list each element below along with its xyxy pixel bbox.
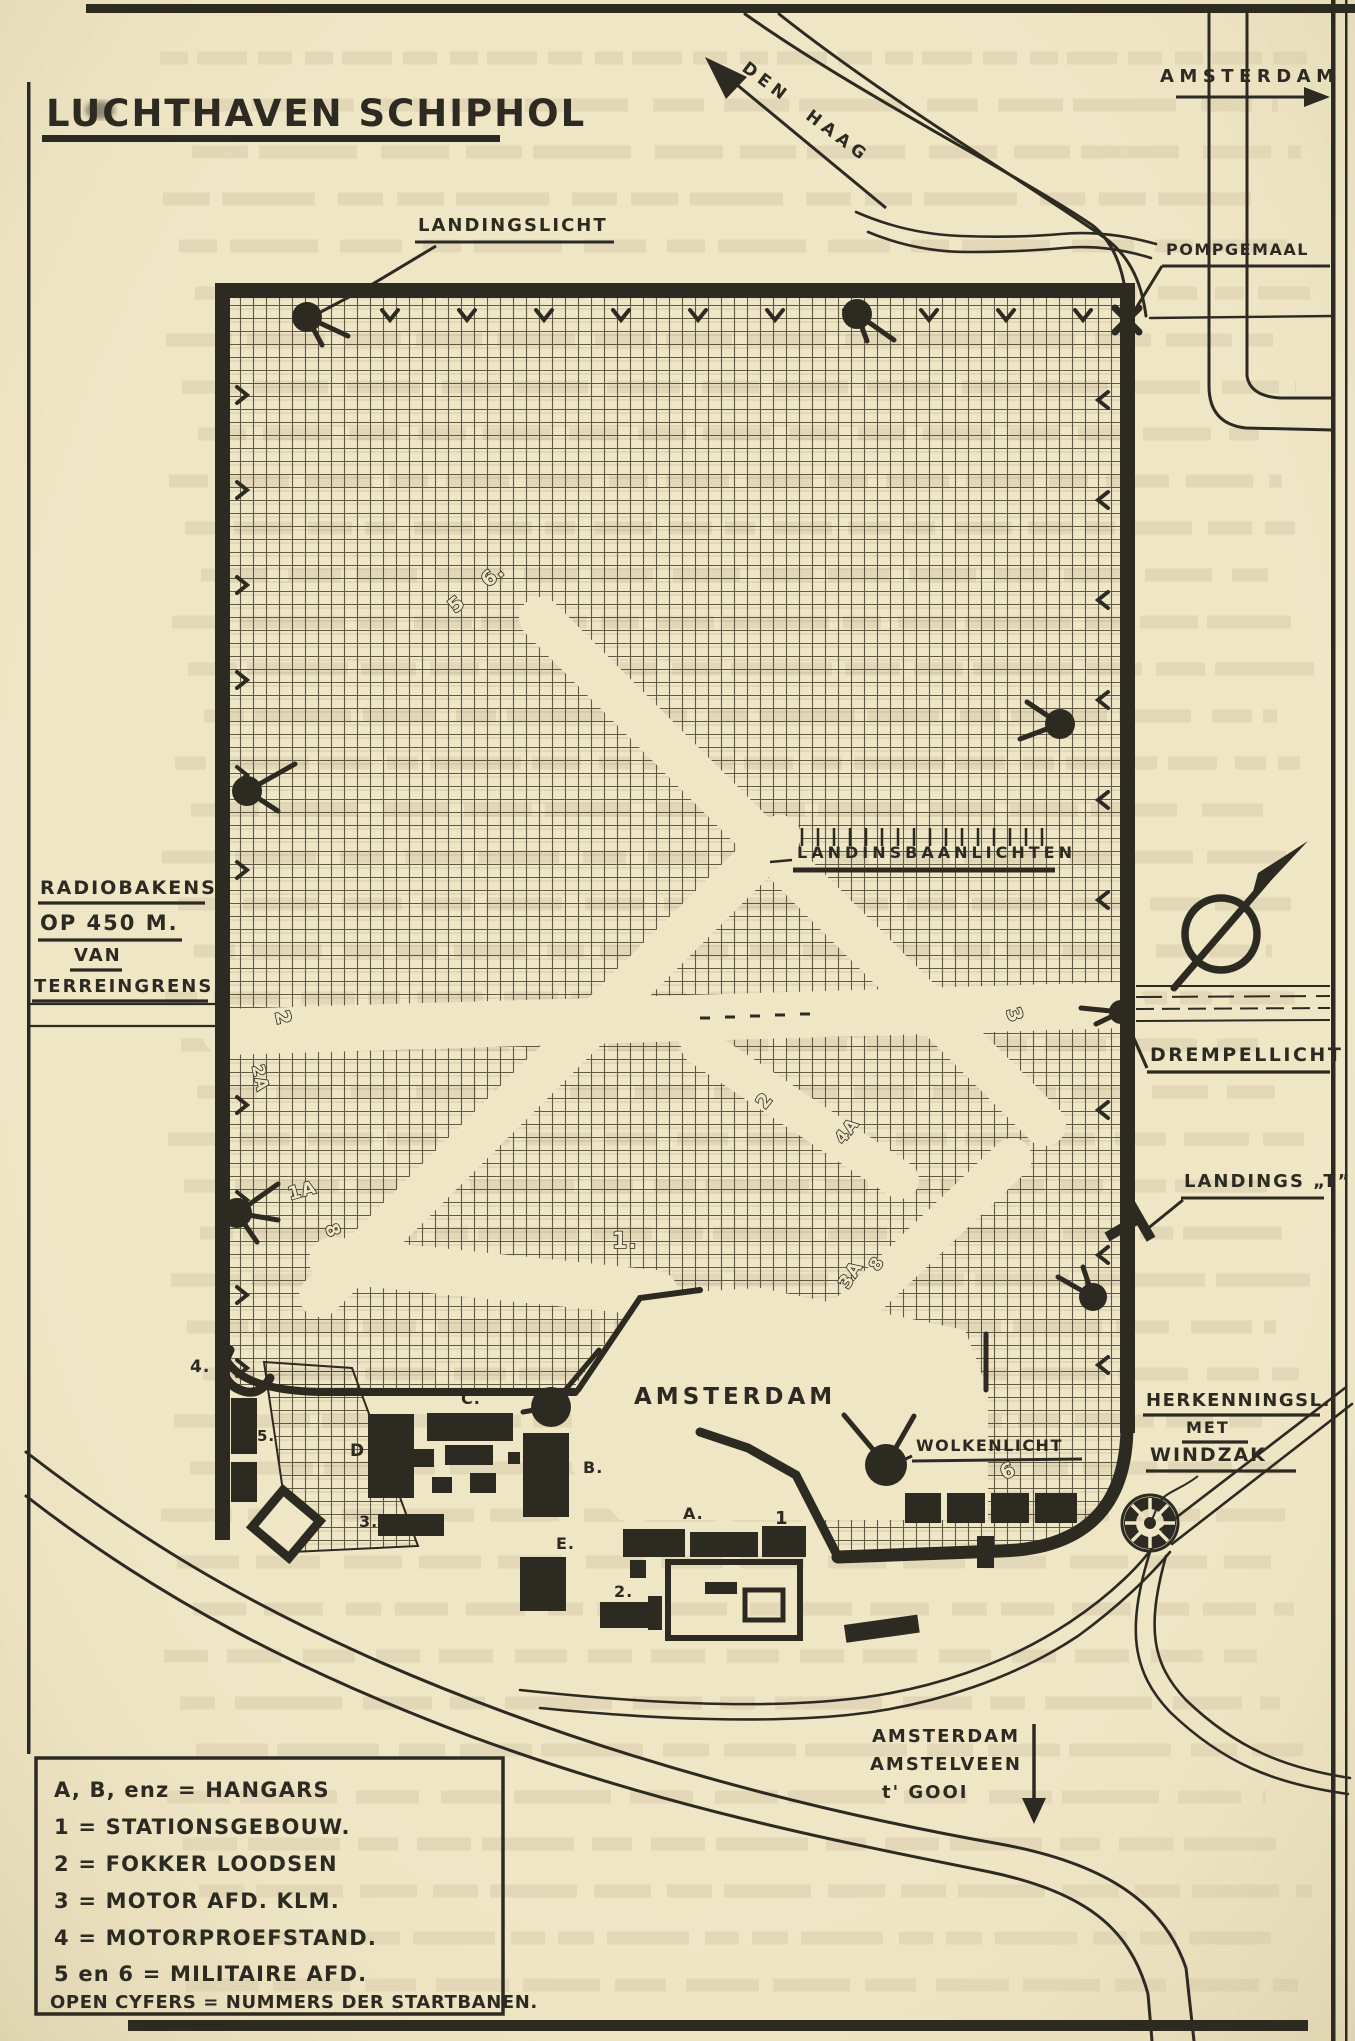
svg-text:DREMPELLICHT: DREMPELLICHT <box>1150 1044 1343 1066</box>
svg-text:LANDINGS „T”: LANDINGS „T” <box>1184 1171 1351 1192</box>
svg-text:C.: C. <box>461 1389 481 1408</box>
svg-text:1: 1 <box>775 1508 789 1529</box>
building-hangar6 <box>1035 1493 1077 1523</box>
building-hangar6 <box>905 1493 941 1523</box>
svg-text:POMPGEMAAL: POMPGEMAAL <box>1166 240 1309 259</box>
title-underline <box>42 135 500 142</box>
svg-text:TERREINGRENS: TERREINGRENS <box>34 976 213 997</box>
building-terminal <box>623 1529 685 1557</box>
legend-item: A, B, enz = HANGARS <box>54 1778 330 1802</box>
building-small <box>977 1536 994 1568</box>
building-hangar6 <box>947 1493 985 1523</box>
building-hangar-e <box>520 1557 566 1611</box>
svg-text:A.: A. <box>683 1504 704 1523</box>
svg-text:B.: B. <box>583 1458 603 1477</box>
building-hangar6 <box>991 1493 1029 1523</box>
building-militair5 <box>231 1398 257 1454</box>
building-small <box>705 1582 737 1594</box>
svg-text:1.: 1. <box>612 1229 638 1254</box>
legend-item: 2 = FOKKER LOODSEN <box>54 1852 338 1876</box>
page-title: LUCHTHAVEN SCHIPHOL <box>46 92 586 135</box>
svg-text:VAN: VAN <box>74 945 122 966</box>
svg-text:2.: 2. <box>614 1582 633 1601</box>
legend-item: 1 = STATIONSGEBOUW. <box>54 1815 351 1839</box>
legend-item: 5 en 6 = MILITAIRE AFD. <box>54 1962 367 1986</box>
building-small <box>508 1452 520 1464</box>
legend-item: OPEN CYFERS = NUMMERS DER STARTBANEN. <box>50 1992 538 2013</box>
building-small <box>630 1560 646 1578</box>
legend-item: 4 = MOTORPROEFSTAND. <box>54 1926 377 1950</box>
runway-one <box>332 1260 655 1293</box>
runway-horizontal <box>225 1005 1122 1032</box>
svg-text:5.: 5. <box>257 1427 275 1445</box>
svg-text:AMSTERDAM: AMSTERDAM <box>872 1726 1020 1747</box>
building-station <box>762 1526 806 1557</box>
svg-text:E.: E. <box>556 1534 575 1553</box>
svg-text:LANDINGSLICHT: LANDINGSLICHT <box>418 215 608 236</box>
scanned-map-page: LUCHTHAVEN SCHIPHOL DEN HAAG AMSTERDAM P… <box>0 0 1355 2041</box>
windsock-icon <box>1122 1495 1178 1551</box>
building-hangar-c <box>427 1413 513 1441</box>
building-small <box>432 1477 452 1493</box>
svg-text:LANDINSBAANLICHTEN: LANDINSBAANLICHTEN <box>797 843 1076 862</box>
ink-smudge <box>85 101 115 119</box>
svg-text:3.: 3. <box>359 1512 378 1531</box>
apron-label: AMSTERDAM <box>634 1384 836 1410</box>
svg-text:D: D <box>350 1441 365 1461</box>
svg-text:HERKENNINGSL.: HERKENNINGSL. <box>1146 1390 1331 1411</box>
building-small <box>470 1473 496 1493</box>
amsterdam-north-label: AMSTERDAM <box>1160 66 1340 87</box>
building-hangar-b <box>523 1433 569 1517</box>
svg-text:4.: 4. <box>190 1357 210 1377</box>
legend-item: 3 = MOTOR AFD. KLM. <box>54 1889 340 1913</box>
building-hangar-c <box>445 1445 493 1465</box>
building-small <box>648 1596 662 1630</box>
building-small <box>414 1449 434 1467</box>
building-motorafd <box>378 1514 444 1536</box>
svg-text:OP 450 M.: OP 450 M. <box>40 911 179 935</box>
svg-text:WOLKENLICHT: WOLKENLICHT <box>916 1436 1063 1455</box>
building-militair5 <box>231 1462 257 1502</box>
svg-text:AMSTELVEEN: AMSTELVEEN <box>870 1754 1022 1775</box>
building-terminal <box>690 1532 758 1557</box>
svg-text:t' GOOI: t' GOOI <box>882 1782 968 1803</box>
building-hangar-d <box>368 1414 414 1498</box>
svg-text:MET: MET <box>1186 1418 1230 1437</box>
svg-text:WINDZAK: WINDZAK <box>1150 1444 1267 1466</box>
svg-text:RADIOBAKENS: RADIOBAKENS <box>40 877 217 899</box>
